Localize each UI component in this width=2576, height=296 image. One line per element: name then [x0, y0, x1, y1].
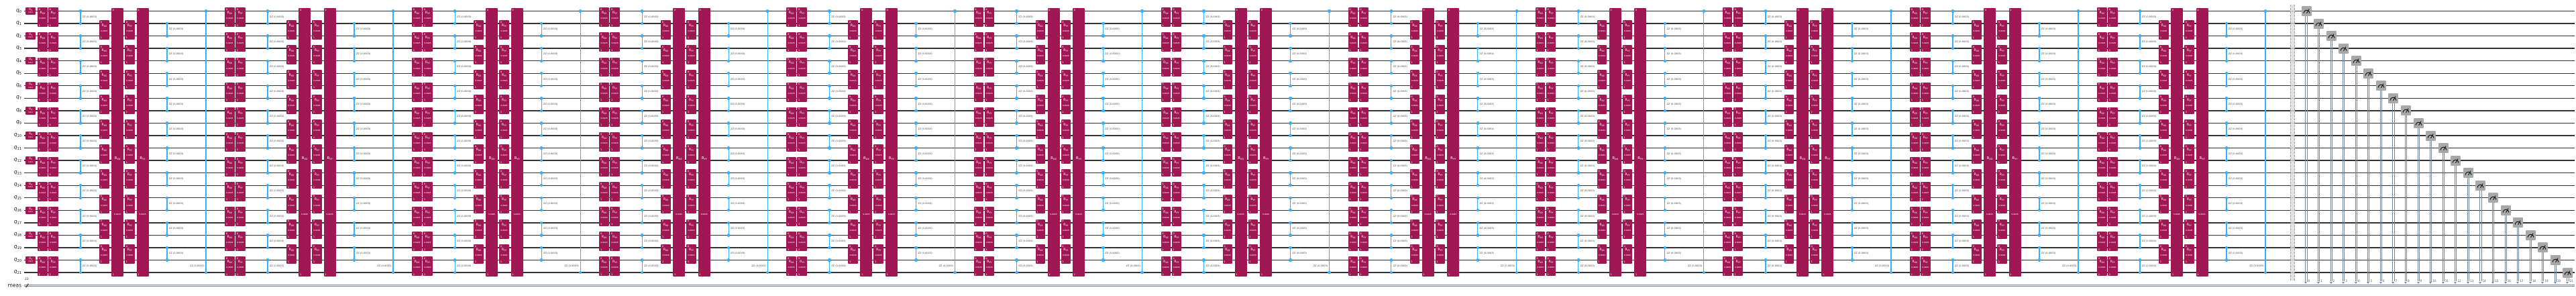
rzz-label: ZZ (0.0003) — [2142, 66, 2156, 68]
rzz-dot — [2139, 146, 2141, 149]
gate-name-sub: YY — [2112, 112, 2115, 115]
rxx-gate: 0RXX0.00251 — [2097, 32, 2107, 52]
gate-endpoint-top: 0 — [2109, 207, 2110, 210]
rzz-dot — [2139, 72, 2141, 75]
gate-endpoint-bottom: 1 — [2098, 198, 2100, 201]
gate-endpoint-bottom: 1 — [2098, 49, 2100, 52]
gate-param: 0.0025 — [2108, 68, 2118, 70]
gate-param: 0.0025 — [2108, 192, 2118, 194]
rzz-label-text: ZZ (0.0003) — [2142, 15, 2156, 18]
gate-endpoint-top: 0 — [2098, 183, 2100, 185]
gate-param: 0.0025 — [2108, 266, 2118, 268]
rzz-dot — [2139, 246, 2141, 249]
gate-param: 0.0025 — [2097, 42, 2107, 44]
rzz-label-text: ZZ (0.0003) — [2142, 40, 2156, 43]
rxx-gate: 0RXX0.00251 — [2097, 7, 2107, 27]
rxx-gate: 0RXX0.00251 — [2097, 132, 2107, 152]
gate-endpoint-bottom: 1 — [2109, 148, 2110, 151]
gate-param: 0.0025 — [2159, 30, 2169, 32]
rzz-label: ZZ (0.0003) — [2142, 16, 2156, 19]
gate-name: RXX — [2097, 37, 2107, 40]
rzz-dot — [2139, 47, 2141, 50]
rzz-dot — [2139, 22, 2141, 25]
gate-name-sub: XX — [2102, 62, 2104, 64]
gate-name-sub: YY — [2112, 236, 2115, 239]
gate-endpoint-bottom: 1 — [2098, 273, 2100, 276]
rzz-label-text: ZZ (0.0003) — [2142, 190, 2156, 193]
rzz-label-text: ZZ (0.0003) — [2142, 65, 2156, 68]
gate-name-sub: YY — [2112, 261, 2115, 264]
rxx-gate: 0RXX0.00251 — [2159, 70, 2169, 89]
rzz-dot — [2139, 60, 2141, 62]
gate-endpoint-bottom: 1 — [2160, 61, 2161, 64]
gate-endpoint-bottom: 1 — [2109, 99, 2110, 101]
rxx-gate: 0RXX0.00251 — [2159, 45, 2169, 64]
gate-endpoint-top: 0 — [2109, 83, 2110, 85]
gate-endpoint-top: 0 — [2160, 21, 2161, 23]
rzz-dot — [2139, 209, 2141, 211]
gate-endpoint-top: 0 — [2109, 8, 2110, 11]
rxx-gate: 0RXX0.00251 — [2097, 256, 2107, 276]
gate-param: 0.0025 — [2159, 55, 2169, 57]
gate-endpoint-top: 0 — [2160, 70, 2161, 73]
trotter-block-12: 0RXX0.002510RXX0.002510RXX0.002510RXX0.0… — [0, 0, 2576, 296]
ryy-gate: 0RYY0.00251 — [2108, 83, 2118, 102]
rzz-dot — [2139, 171, 2141, 174]
gate-endpoint-bottom: 1 — [2098, 173, 2100, 176]
rzz-dot — [2139, 184, 2141, 187]
gate-name-sub: XX — [2102, 12, 2104, 15]
rzz-dot — [2139, 9, 2141, 12]
gate-param: 0.0025 — [2108, 217, 2118, 219]
gate-endpoint-top: 0 — [2098, 232, 2100, 235]
gate-endpoint-bottom: 1 — [2098, 223, 2100, 226]
rzz-dot — [2139, 34, 2141, 37]
gate-name: RXX — [2097, 137, 2107, 140]
rzz-label: ZZ (0.0003) — [2142, 240, 2156, 243]
gate-name: RYY — [2108, 37, 2118, 40]
rzz-dot — [2139, 159, 2141, 162]
gate-endpoint-bottom: 1 — [2098, 248, 2100, 251]
gate-endpoint-top: 0 — [2098, 83, 2100, 85]
rzz-label-text: ZZ (0.0003) — [2142, 165, 2156, 168]
rxx-gate: 0RXX0.00251 — [2159, 119, 2169, 139]
rzz-label: ZZ (0.0003) — [2142, 265, 2156, 268]
gate-name: RYY — [2108, 112, 2118, 115]
ryy-gate: 0RYY0.00251 — [2108, 207, 2118, 226]
gate-name: RXX — [2097, 236, 2107, 240]
gate-name: RXX — [2097, 187, 2107, 190]
gate-param: 0.0025 — [2108, 242, 2118, 244]
gate-endpoint-top: 0 — [2098, 207, 2100, 210]
gate-name-sub: XX — [2102, 261, 2104, 264]
rxx-gate: 0RXX0.00251 — [2097, 83, 2107, 102]
gate-endpoint-top: 0 — [2098, 58, 2100, 60]
gate-name: RYY — [2108, 12, 2118, 15]
gate-param: 0.0025 — [2097, 217, 2107, 219]
gate-endpoint-top: 0 — [2109, 232, 2110, 235]
gate-name-sub: YY — [2112, 87, 2115, 90]
ryy-gate: 0RYY0.00251 — [2108, 157, 2118, 177]
ryy-gate: 0RYY0.00251 — [2108, 7, 2118, 27]
gate-name: RYY — [2108, 137, 2118, 140]
gate-endpoint-bottom: 1 — [2160, 111, 2161, 113]
gate-endpoint-top: 0 — [2098, 257, 2100, 260]
ryy-gate: 0RYY0.00251 — [2108, 58, 2118, 77]
gate-param: 0.0025 — [2108, 93, 2118, 95]
rzz-dot — [2139, 134, 2141, 137]
gate-name-sub: YY — [2112, 137, 2115, 140]
ryy-gate: 0RYY0.00251 — [2108, 132, 2118, 152]
rxx-gate: 0RXX0.00251 — [2159, 95, 2169, 114]
gate-endpoint-top: 0 — [2109, 107, 2110, 110]
gate-param: 0.0025 — [2097, 192, 2107, 194]
gate-name: RXX — [2159, 99, 2169, 103]
gate-param: 0.0025 — [2108, 42, 2118, 44]
gate-name: RYY — [2108, 261, 2118, 264]
gate-name: RXX — [2097, 12, 2107, 15]
gate-param: 0.0025 — [2097, 142, 2107, 144]
rzz-dot — [2139, 221, 2141, 224]
gate-name-sub: XX — [2102, 112, 2104, 115]
gate-name-sub: XX — [2102, 87, 2104, 90]
rzz-label: ZZ (0.0003) — [2142, 191, 2156, 193]
gate-name: RYY — [2108, 211, 2118, 215]
gate-endpoint-bottom: 1 — [2109, 24, 2110, 27]
gate-endpoint-top: 0 — [2098, 33, 2100, 36]
gate-endpoint-bottom: 1 — [2109, 49, 2110, 52]
gate-name: RXX — [2159, 25, 2169, 28]
gate-name: RXX — [2097, 162, 2107, 165]
gate-endpoint-top: 0 — [2098, 158, 2100, 160]
gate-endpoint-bottom: 1 — [2160, 36, 2161, 39]
rzz-dot — [2139, 121, 2141, 124]
rxx-gate: 0RXX0.00251 — [2097, 207, 2107, 226]
ryy-gate: 0RYY0.00251 — [2108, 232, 2118, 251]
gate-endpoint-top: 0 — [2098, 133, 2100, 136]
gate-endpoint-bottom: 1 — [2098, 74, 2100, 77]
rzz-dot — [2139, 97, 2141, 99]
gate-param: 0.0025 — [2108, 17, 2118, 19]
rzz-label-text: ZZ (0.0003) — [2142, 240, 2156, 242]
gate-name-sub: XX — [2102, 187, 2104, 189]
gate-param: 0.0025 — [2108, 117, 2118, 119]
gate-param: 0.0025 — [2097, 266, 2107, 268]
gate-param: 0.0025 — [2097, 93, 2107, 95]
rzz-dot — [2139, 258, 2141, 261]
gate-name: RYY — [2108, 187, 2118, 190]
gate-endpoint-top: 0 — [2109, 183, 2110, 185]
gate-name-sub: XX — [2102, 211, 2104, 214]
rzz-label-text: ZZ (0.0003) — [2142, 264, 2156, 267]
ryy-gate: 0RYY0.00251 — [2108, 182, 2118, 201]
gate-param: 0.0025 — [2097, 242, 2107, 244]
gate-name-sub: YY — [2112, 12, 2115, 15]
gate-name-sub: XX — [2163, 25, 2166, 28]
rxx-gate: 0RXX0.00251 — [2097, 107, 2107, 127]
gate-endpoint-top: 0 — [2109, 158, 2110, 160]
gate-name: RXX — [2097, 211, 2107, 215]
gate-name: RXX — [2159, 75, 2169, 78]
gate-name: RXX — [2097, 62, 2107, 65]
rzz-label: ZZ (0.0003) — [2142, 215, 2156, 218]
gate-endpoint-bottom: 1 — [2109, 74, 2110, 77]
rzz-label: ZZ (0.0003) — [2142, 166, 2156, 168]
gate-name-sub: XX — [2102, 37, 2104, 40]
rzz-label: ZZ (0.0003) — [2142, 91, 2156, 93]
gate-name: RYY — [2108, 62, 2118, 65]
rxx-gate: 0RXX0.00251 — [2097, 232, 2107, 251]
gate-endpoint-top: 0 — [2160, 46, 2161, 48]
gate-endpoint-top: 0 — [2109, 33, 2110, 36]
gate-name-sub: YY — [2112, 187, 2115, 189]
gate-endpoint-bottom: 1 — [2109, 273, 2110, 276]
rzz-label-text: ZZ (0.0003) — [2142, 90, 2156, 93]
gate-name: RXX — [2159, 50, 2169, 53]
gate-endpoint-top: 0 — [2109, 58, 2110, 60]
gate-endpoint-bottom: 1 — [2109, 248, 2110, 251]
gate-endpoint-bottom: 1 — [2098, 124, 2100, 126]
gate-param: 0.0025 — [2108, 167, 2118, 169]
rzz-dot — [2139, 271, 2141, 274]
gate-endpoint-bottom: 1 — [2160, 86, 2161, 89]
rzz-dot — [2139, 109, 2141, 112]
gate-param: 0.0025 — [2097, 167, 2107, 169]
gate-endpoint-bottom: 1 — [2098, 24, 2100, 27]
gate-param: 0.0025 — [2097, 117, 2107, 119]
gate-name-sub: YY — [2112, 62, 2115, 64]
rzz-label-text: ZZ (0.0003) — [2142, 215, 2156, 217]
rzz-label: ZZ (0.0003) — [2142, 140, 2156, 143]
gate-name: RXX — [2097, 112, 2107, 115]
gate-param: 0.0025 — [2097, 17, 2107, 19]
gate-endpoint-top: 0 — [2098, 107, 2100, 110]
gate-endpoint-bottom: 1 — [2098, 99, 2100, 101]
gate-name: RYY — [2108, 236, 2118, 240]
gate-endpoint-top: 0 — [2160, 95, 2161, 98]
gate-endpoint-bottom: 1 — [2109, 173, 2110, 176]
gate-name: RYY — [2108, 87, 2118, 91]
ryy-gate: 0RYY0.00251 — [2108, 107, 2118, 127]
gate-name-sub: XX — [2102, 137, 2104, 140]
rzz-dot — [2139, 234, 2141, 236]
ryy-gate: 0RYY0.00251 — [2108, 256, 2118, 276]
rxx-gate: 0RXX0.00251 — [2097, 58, 2107, 77]
gate-name: RXX — [2097, 261, 2107, 264]
rzz-dot — [2139, 85, 2141, 87]
gate-endpoint-top: 0 — [2160, 120, 2161, 123]
ryy-gate: 0RYY0.00251 — [2108, 32, 2118, 52]
gate-endpoint-bottom: 1 — [2098, 148, 2100, 151]
rxx-gate: 0RXX0.00251 — [2159, 20, 2169, 40]
rxx-gate: 0RXX0.00251 — [2097, 157, 2107, 177]
rzz-label: ZZ (0.0003) — [2142, 41, 2156, 44]
gate-name-sub: XX — [2102, 162, 2104, 164]
gate-name: RYY — [2108, 162, 2118, 165]
gate-name-sub: XX — [2163, 75, 2166, 77]
rzz-dot — [2139, 197, 2141, 199]
gate-name-sub: XX — [2102, 236, 2104, 239]
gate-param: 0.0025 — [2097, 68, 2107, 70]
rzz-label-text: ZZ (0.0003) — [2142, 115, 2156, 117]
gate-endpoint-bottom: 1 — [2109, 223, 2110, 226]
gate-endpoint-top: 0 — [2098, 8, 2100, 11]
gate-endpoint-bottom: 1 — [2109, 124, 2110, 126]
gate-endpoint-top: 0 — [2109, 133, 2110, 136]
gate-name: RXX — [2097, 87, 2107, 91]
rzz-connector — [2139, 185, 2140, 198]
rzz-label: ZZ (0.0003) — [2142, 115, 2156, 118]
gate-name-sub: XX — [2163, 99, 2166, 102]
gate-name-sub: YY — [2112, 37, 2115, 40]
gate-param: 0.0025 — [2159, 80, 2169, 82]
rzz-label-text: ZZ (0.0003) — [2142, 140, 2156, 142]
gate-endpoint-bottom: 1 — [2109, 198, 2110, 201]
gate-endpoint-top: 0 — [2109, 257, 2110, 260]
gate-param: 0.0025 — [2159, 105, 2169, 107]
gate-param: 0.0025 — [2108, 142, 2118, 144]
gate-name-sub: XX — [2163, 50, 2166, 52]
rxx-gate: 0RXX0.00251 — [2097, 182, 2107, 201]
gate-name-sub: YY — [2112, 162, 2115, 164]
quantum-circuit-diagram: q0q1q2q3q4q5q6q7q8q9q10q11q12q13q14q15q1… — [0, 0, 2576, 296]
gate-name-sub: YY — [2112, 211, 2115, 214]
